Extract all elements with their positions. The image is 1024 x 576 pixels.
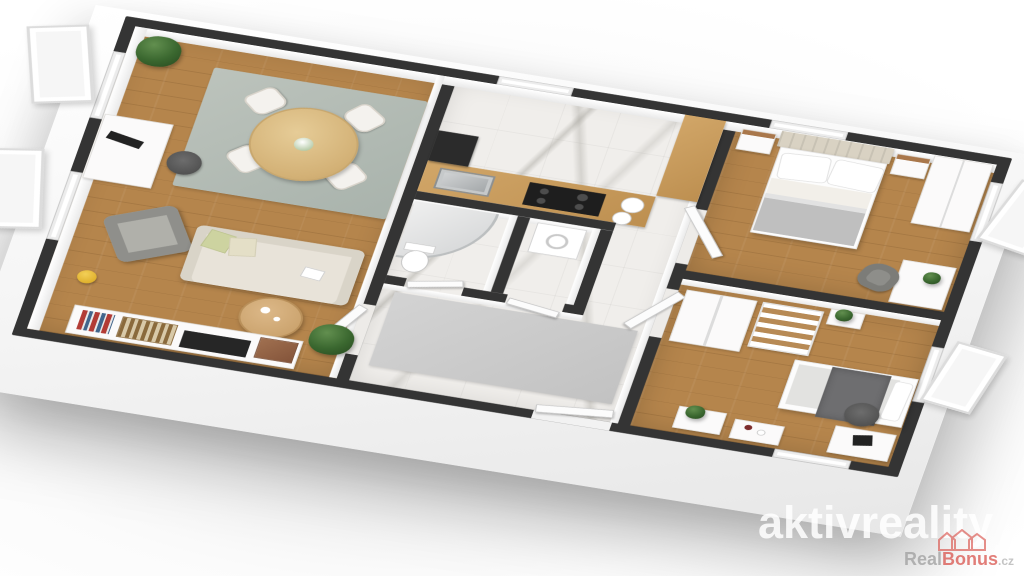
brand-text: RealBonus.cz: [904, 549, 1014, 570]
laptop: [853, 435, 873, 446]
brand-name-accent: Bonus: [942, 549, 998, 569]
floorplan-render-stage: aktivreality RealBonus.cz: [0, 0, 1024, 576]
brand-domain-suffix: .cz: [998, 554, 1014, 568]
throw-pillow: [228, 237, 257, 256]
houses-icon: [936, 529, 992, 551]
bathroom-door: [407, 281, 464, 288]
floorplan-scene: [0, 0, 1024, 576]
open-window-sash: [27, 25, 95, 104]
apartment-plan: [12, 16, 1013, 477]
brand-name-primary: Real: [904, 549, 942, 569]
open-window-sash: [0, 148, 45, 229]
